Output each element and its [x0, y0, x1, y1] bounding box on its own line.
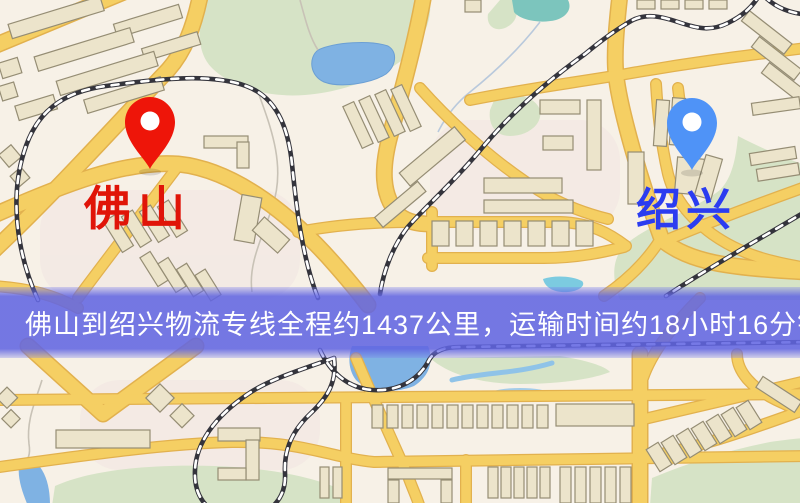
- marker-label-foshan: 佛山: [84, 170, 192, 239]
- map-canvas[interactable]: [0, 0, 800, 503]
- map-screenshot: 佛山 绍兴 佛山到绍兴物流专线全程约1437公里，运输时间约18小时16分钟.: [0, 0, 800, 503]
- route-banner: 佛山到绍兴物流专线全程约1437公里，运输时间约18小时16分钟.: [0, 287, 800, 358]
- marker-label-shaoxing: 绍兴: [636, 173, 736, 238]
- route-banner-text: 佛山到绍兴物流专线全程约1437公里，运输时间约18小时16分钟.: [25, 303, 800, 342]
